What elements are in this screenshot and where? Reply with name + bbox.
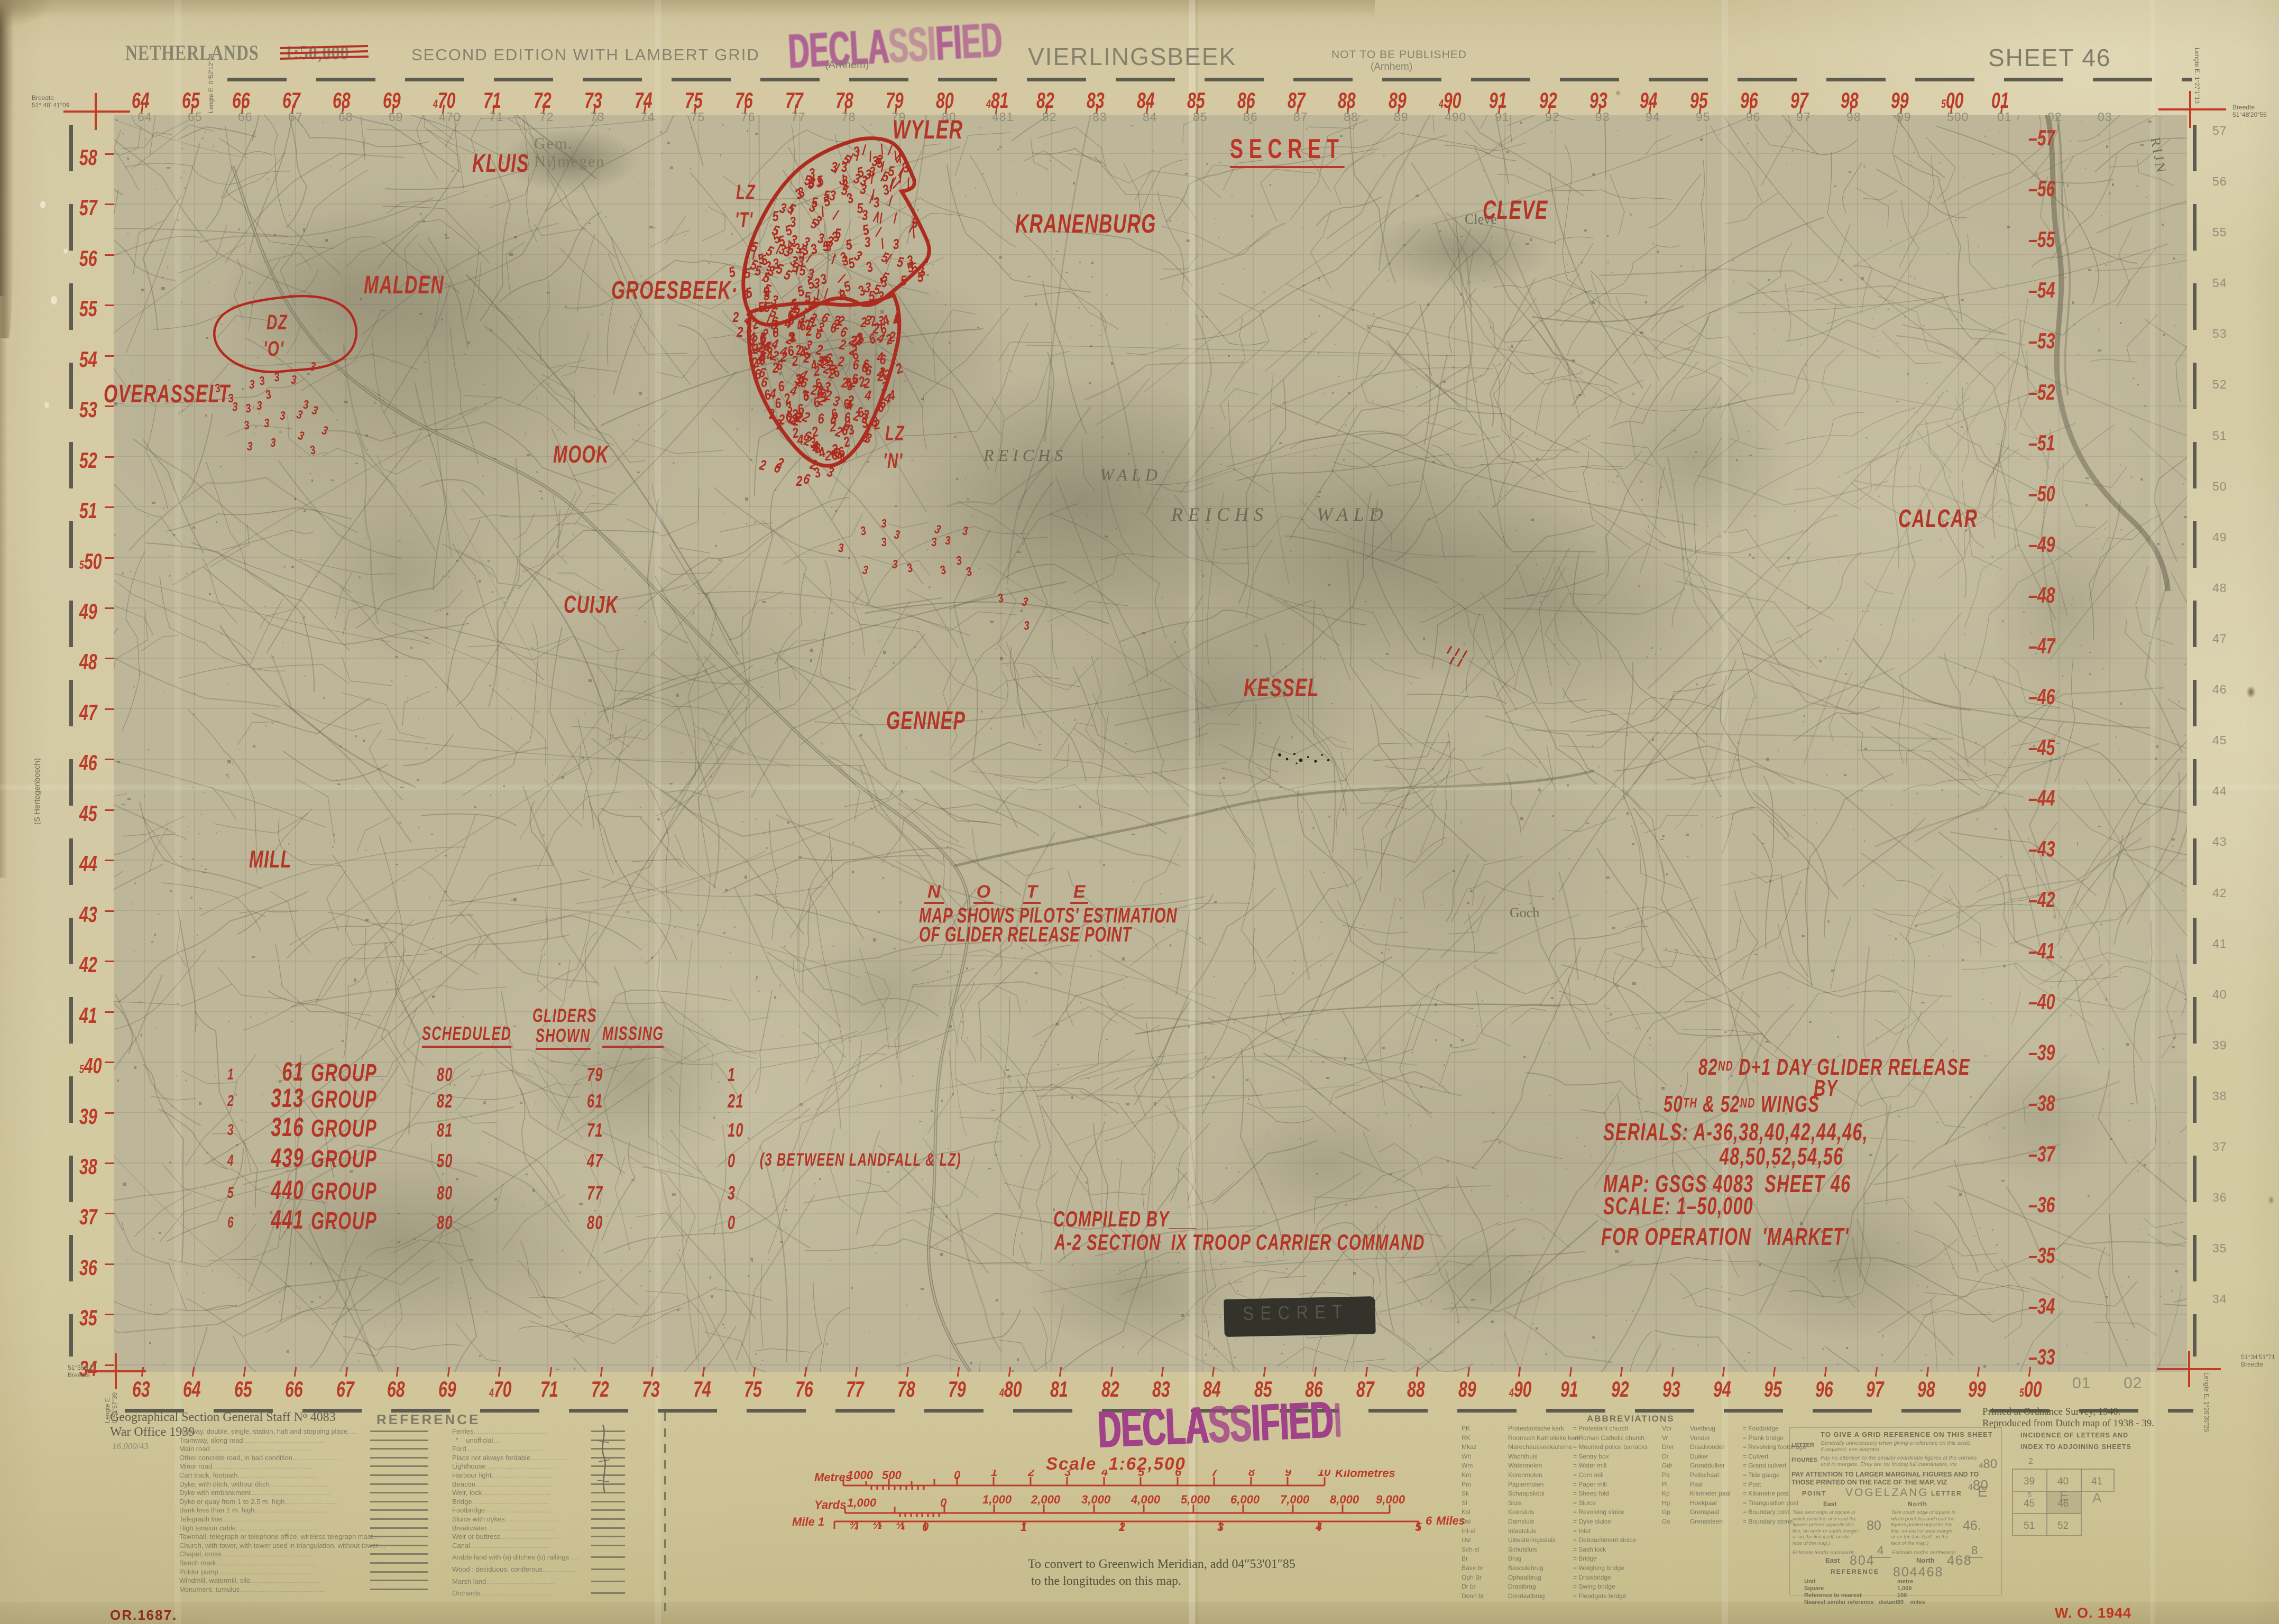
- svg-text:41: 41: [2091, 1476, 2102, 1487]
- svg-text:5: 5: [2028, 1491, 2032, 1499]
- svg-text:1,000: 1,000: [847, 1496, 877, 1509]
- svg-text:A: A: [2092, 1490, 2102, 1506]
- svg-text:4: 4: [1315, 1520, 1322, 1534]
- svg-text:10: 10: [1318, 1470, 1331, 1479]
- svg-text:2,000: 2,000: [1031, 1495, 1061, 1506]
- svg-text:6,000: 6,000: [1230, 1495, 1260, 1506]
- svg-text:10,000: 10,000: [1389, 1495, 1425, 1498]
- svg-text:7,000: 7,000: [1280, 1495, 1310, 1506]
- svg-text:39: 39: [2024, 1476, 2035, 1487]
- svg-text:3: 3: [1217, 1520, 1224, 1534]
- svg-text:Kilometres: Kilometres: [1335, 1470, 1395, 1480]
- svg-text:Metres: Metres: [814, 1471, 852, 1484]
- svg-text:52: 52: [2057, 1520, 2069, 1531]
- svg-text:6: 6: [1426, 1514, 1432, 1527]
- svg-text:7: 7: [1211, 1470, 1219, 1479]
- svg-text:2: 2: [1118, 1520, 1126, 1534]
- svg-text:51: 51: [2024, 1520, 2035, 1531]
- svg-text:4: 4: [1101, 1470, 1108, 1479]
- svg-text:8: 8: [1248, 1470, 1255, 1479]
- svg-text:5: 5: [1138, 1470, 1145, 1479]
- svg-text:¼: ¼: [896, 1518, 905, 1531]
- svg-text:40: 40: [2057, 1476, 2069, 1487]
- svg-text:3,000: 3,000: [1081, 1495, 1111, 1506]
- svg-text:Mile 1: Mile 1: [792, 1515, 824, 1528]
- svg-text:500: 500: [882, 1470, 902, 1482]
- svg-text:8,000: 8,000: [1330, 1495, 1359, 1506]
- svg-text:Yards: Yards: [814, 1498, 846, 1511]
- svg-text:1: 1: [991, 1470, 997, 1479]
- svg-text:3: 3: [1064, 1470, 1071, 1479]
- svg-text:1000: 1000: [847, 1470, 874, 1482]
- svg-text:0: 0: [940, 1496, 947, 1509]
- svg-text:Miles: Miles: [1436, 1514, 1465, 1527]
- svg-text:¾: ¾: [849, 1518, 859, 1531]
- svg-text:1: 1: [1021, 1520, 1027, 1534]
- svg-text:2: 2: [1027, 1470, 1035, 1479]
- svg-text:E: E: [2060, 1488, 2069, 1503]
- svg-text:0: 0: [954, 1470, 961, 1482]
- svg-text:6: 6: [1175, 1470, 1182, 1479]
- svg-text:5: 5: [1415, 1520, 1422, 1534]
- svg-text:½: ½: [872, 1518, 882, 1531]
- svg-text:9: 9: [1285, 1470, 1292, 1479]
- svg-text:0: 0: [922, 1520, 929, 1534]
- svg-text:5,000: 5,000: [1181, 1495, 1210, 1506]
- svg-text:1,000: 1,000: [982, 1495, 1012, 1506]
- svg-text:Yards: Yards: [1425, 1495, 1457, 1497]
- svg-text:4,000: 4,000: [1131, 1495, 1161, 1506]
- svg-text:45: 45: [2024, 1498, 2035, 1509]
